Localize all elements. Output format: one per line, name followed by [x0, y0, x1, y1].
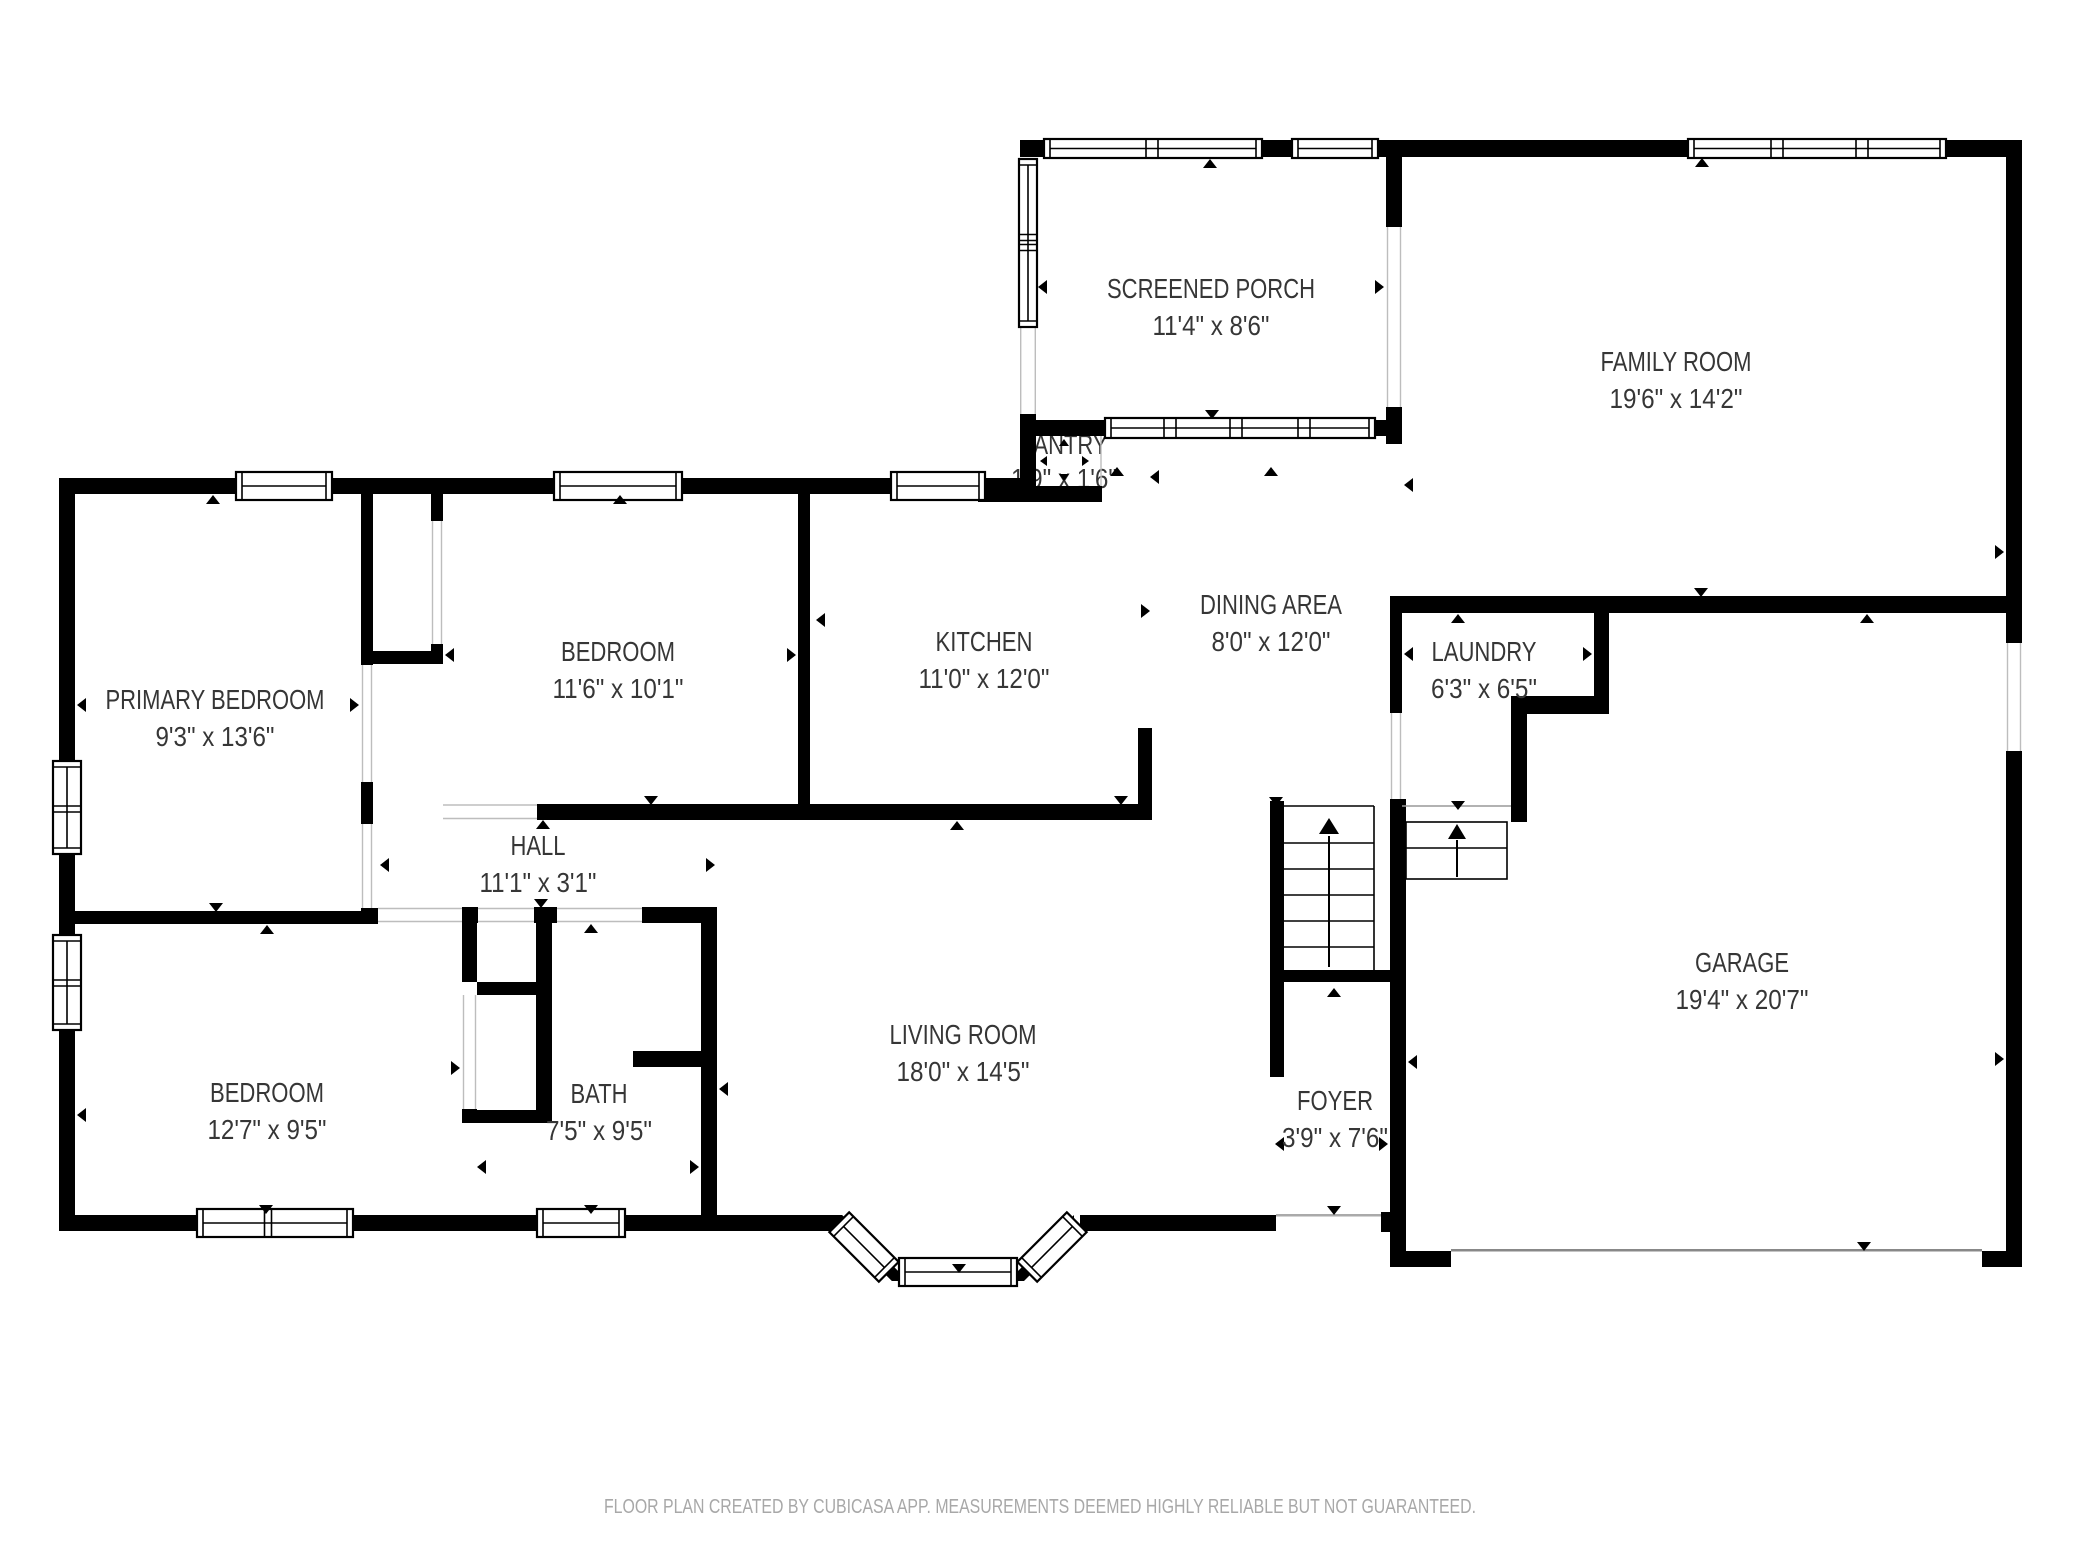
svg-text:12'7" x 9'5": 12'7" x 9'5"	[208, 1114, 327, 1145]
svg-text:7'5" x 9'5": 7'5" x 9'5"	[546, 1115, 652, 1146]
svg-text:19'6" x 14'2": 19'6" x 14'2"	[1610, 383, 1743, 414]
svg-text:BEDROOM: BEDROOM	[210, 1077, 324, 1108]
svg-text:LIVING ROOM: LIVING ROOM	[890, 1019, 1037, 1050]
svg-text:GARAGE: GARAGE	[1695, 947, 1789, 978]
svg-text:BEDROOM: BEDROOM	[561, 636, 675, 667]
svg-text:3'9" x 7'6": 3'9" x 7'6"	[1282, 1122, 1388, 1153]
svg-text:19'4" x 20'7": 19'4" x 20'7"	[1676, 984, 1809, 1015]
svg-text:PRIMARY BEDROOM: PRIMARY BEDROOM	[106, 684, 325, 715]
svg-text:SCREENED PORCH: SCREENED PORCH	[1107, 273, 1315, 304]
svg-text:18'0" x 14'5": 18'0" x 14'5"	[897, 1056, 1030, 1087]
svg-text:LAUNDRY: LAUNDRY	[1432, 636, 1537, 667]
svg-text:8'0" x 12'0": 8'0" x 12'0"	[1212, 626, 1331, 657]
svg-text:FOYER: FOYER	[1297, 1085, 1373, 1116]
svg-text:DINING AREA: DINING AREA	[1200, 589, 1343, 620]
svg-text:6'3" x 6'5": 6'3" x 6'5"	[1431, 673, 1537, 704]
svg-text:11'4" x 8'6": 11'4" x 8'6"	[1153, 310, 1270, 341]
svg-text:BATH: BATH	[571, 1078, 628, 1109]
svg-text:KITCHEN: KITCHEN	[936, 626, 1033, 657]
svg-text:FLOOR PLAN CREATED BY CUBICASA: FLOOR PLAN CREATED BY CUBICASA APP. MEAS…	[604, 1496, 1476, 1518]
svg-text:9'3" x 13'6": 9'3" x 13'6"	[156, 721, 275, 752]
svg-text:11'0" x 12'0": 11'0" x 12'0"	[919, 663, 1050, 694]
svg-text:FAMILY ROOM: FAMILY ROOM	[1601, 346, 1752, 377]
svg-text:11'6" x 10'1": 11'6" x 10'1"	[553, 673, 684, 704]
svg-text:HALL: HALL	[511, 830, 566, 861]
svg-text:11'1" x 3'1": 11'1" x 3'1"	[480, 867, 597, 898]
